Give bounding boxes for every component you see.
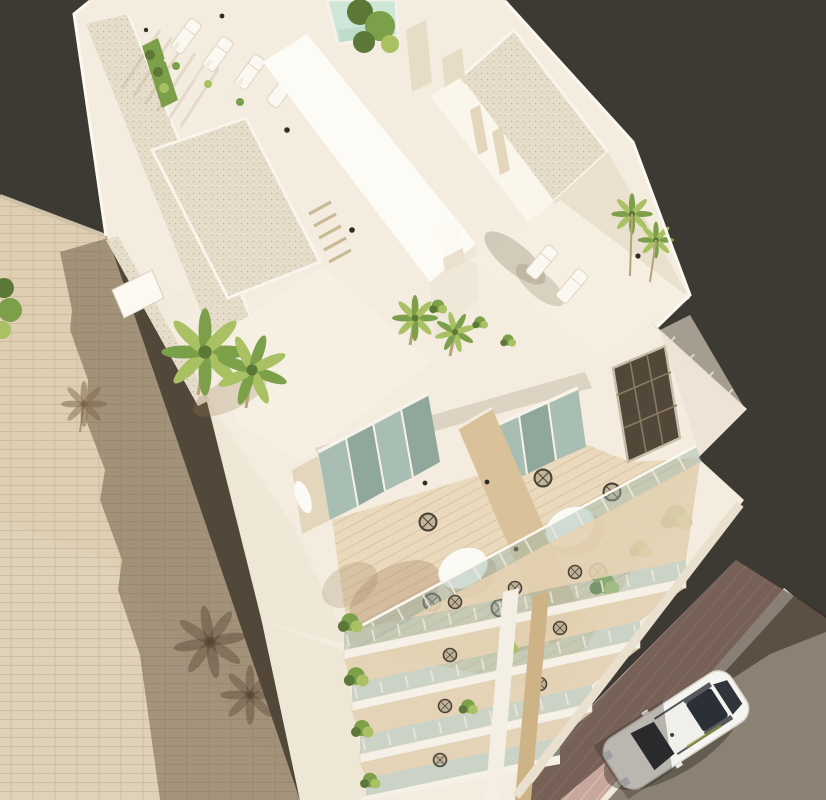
wire-chair bbox=[535, 470, 552, 487]
architectural-render bbox=[0, 0, 826, 800]
balcony-chair bbox=[439, 700, 452, 713]
balcony-chair bbox=[444, 649, 457, 662]
palm-tree bbox=[392, 295, 438, 341]
wire-chair bbox=[420, 514, 437, 531]
palm-shadow-on-wall-2 bbox=[220, 665, 280, 725]
render-canvas bbox=[0, 0, 826, 800]
balcony-chair bbox=[449, 596, 462, 609]
balcony-chair bbox=[554, 622, 567, 635]
balcony-chair bbox=[569, 566, 582, 579]
balcony-chair bbox=[434, 754, 447, 767]
